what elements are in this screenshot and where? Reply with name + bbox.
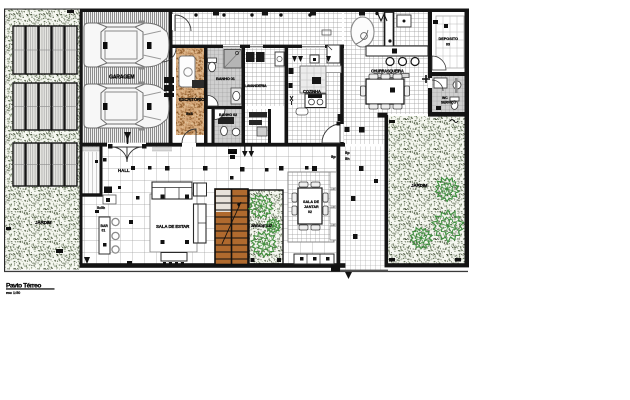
svg-text:02: 02	[308, 210, 312, 214]
svg-text:BAR: BAR	[101, 224, 109, 228]
svg-text:BANHO 01: BANHO 01	[216, 76, 236, 81]
svg-text:5h: 5h	[345, 156, 350, 161]
svg-text:SALA DE ESTAR: SALA DE ESTAR	[156, 224, 190, 229]
svg-text:JARDIM: JARDIM	[411, 183, 428, 188]
svg-text:SALA DE: SALA DE	[303, 200, 320, 204]
svg-text:GARAGEM: GARAGEM	[109, 75, 134, 81]
svg-text:01: 01	[102, 229, 106, 233]
svg-text:5x5: 5x5	[230, 151, 236, 155]
svg-text:5p: 5p	[345, 150, 350, 155]
svg-text:5p: 5p	[331, 154, 336, 159]
svg-text:ESCRITÓRIO: ESCRITÓRIO	[179, 97, 205, 102]
svg-text:ÁREA DE LUZ: ÁREA DE LUZ	[251, 223, 273, 228]
svg-text:DEPOSITO: DEPOSITO	[439, 37, 459, 41]
svg-text:CHURRASQUEIRA: CHURRASQUEIRA	[371, 69, 404, 74]
svg-text:esc 1:50: esc 1:50	[6, 291, 20, 295]
svg-text:SERVIÇO: SERVIÇO	[441, 101, 457, 105]
svg-text:WC: WC	[442, 96, 448, 100]
svg-text:JARDIM: JARDIM	[35, 220, 52, 225]
svg-text:JANTAR: JANTAR	[304, 205, 319, 209]
svg-text:03: 03	[446, 43, 450, 47]
svg-text:5x5: 5x5	[186, 111, 193, 116]
svg-text:5x5h: 5x5h	[97, 206, 105, 210]
svg-text:HALL: HALL	[118, 168, 130, 173]
svg-text:BANHO 02: BANHO 02	[219, 113, 237, 117]
svg-text:COZINHA: COZINHA	[303, 89, 321, 94]
svg-text:LAVANDERIA: LAVANDERIA	[245, 83, 267, 88]
